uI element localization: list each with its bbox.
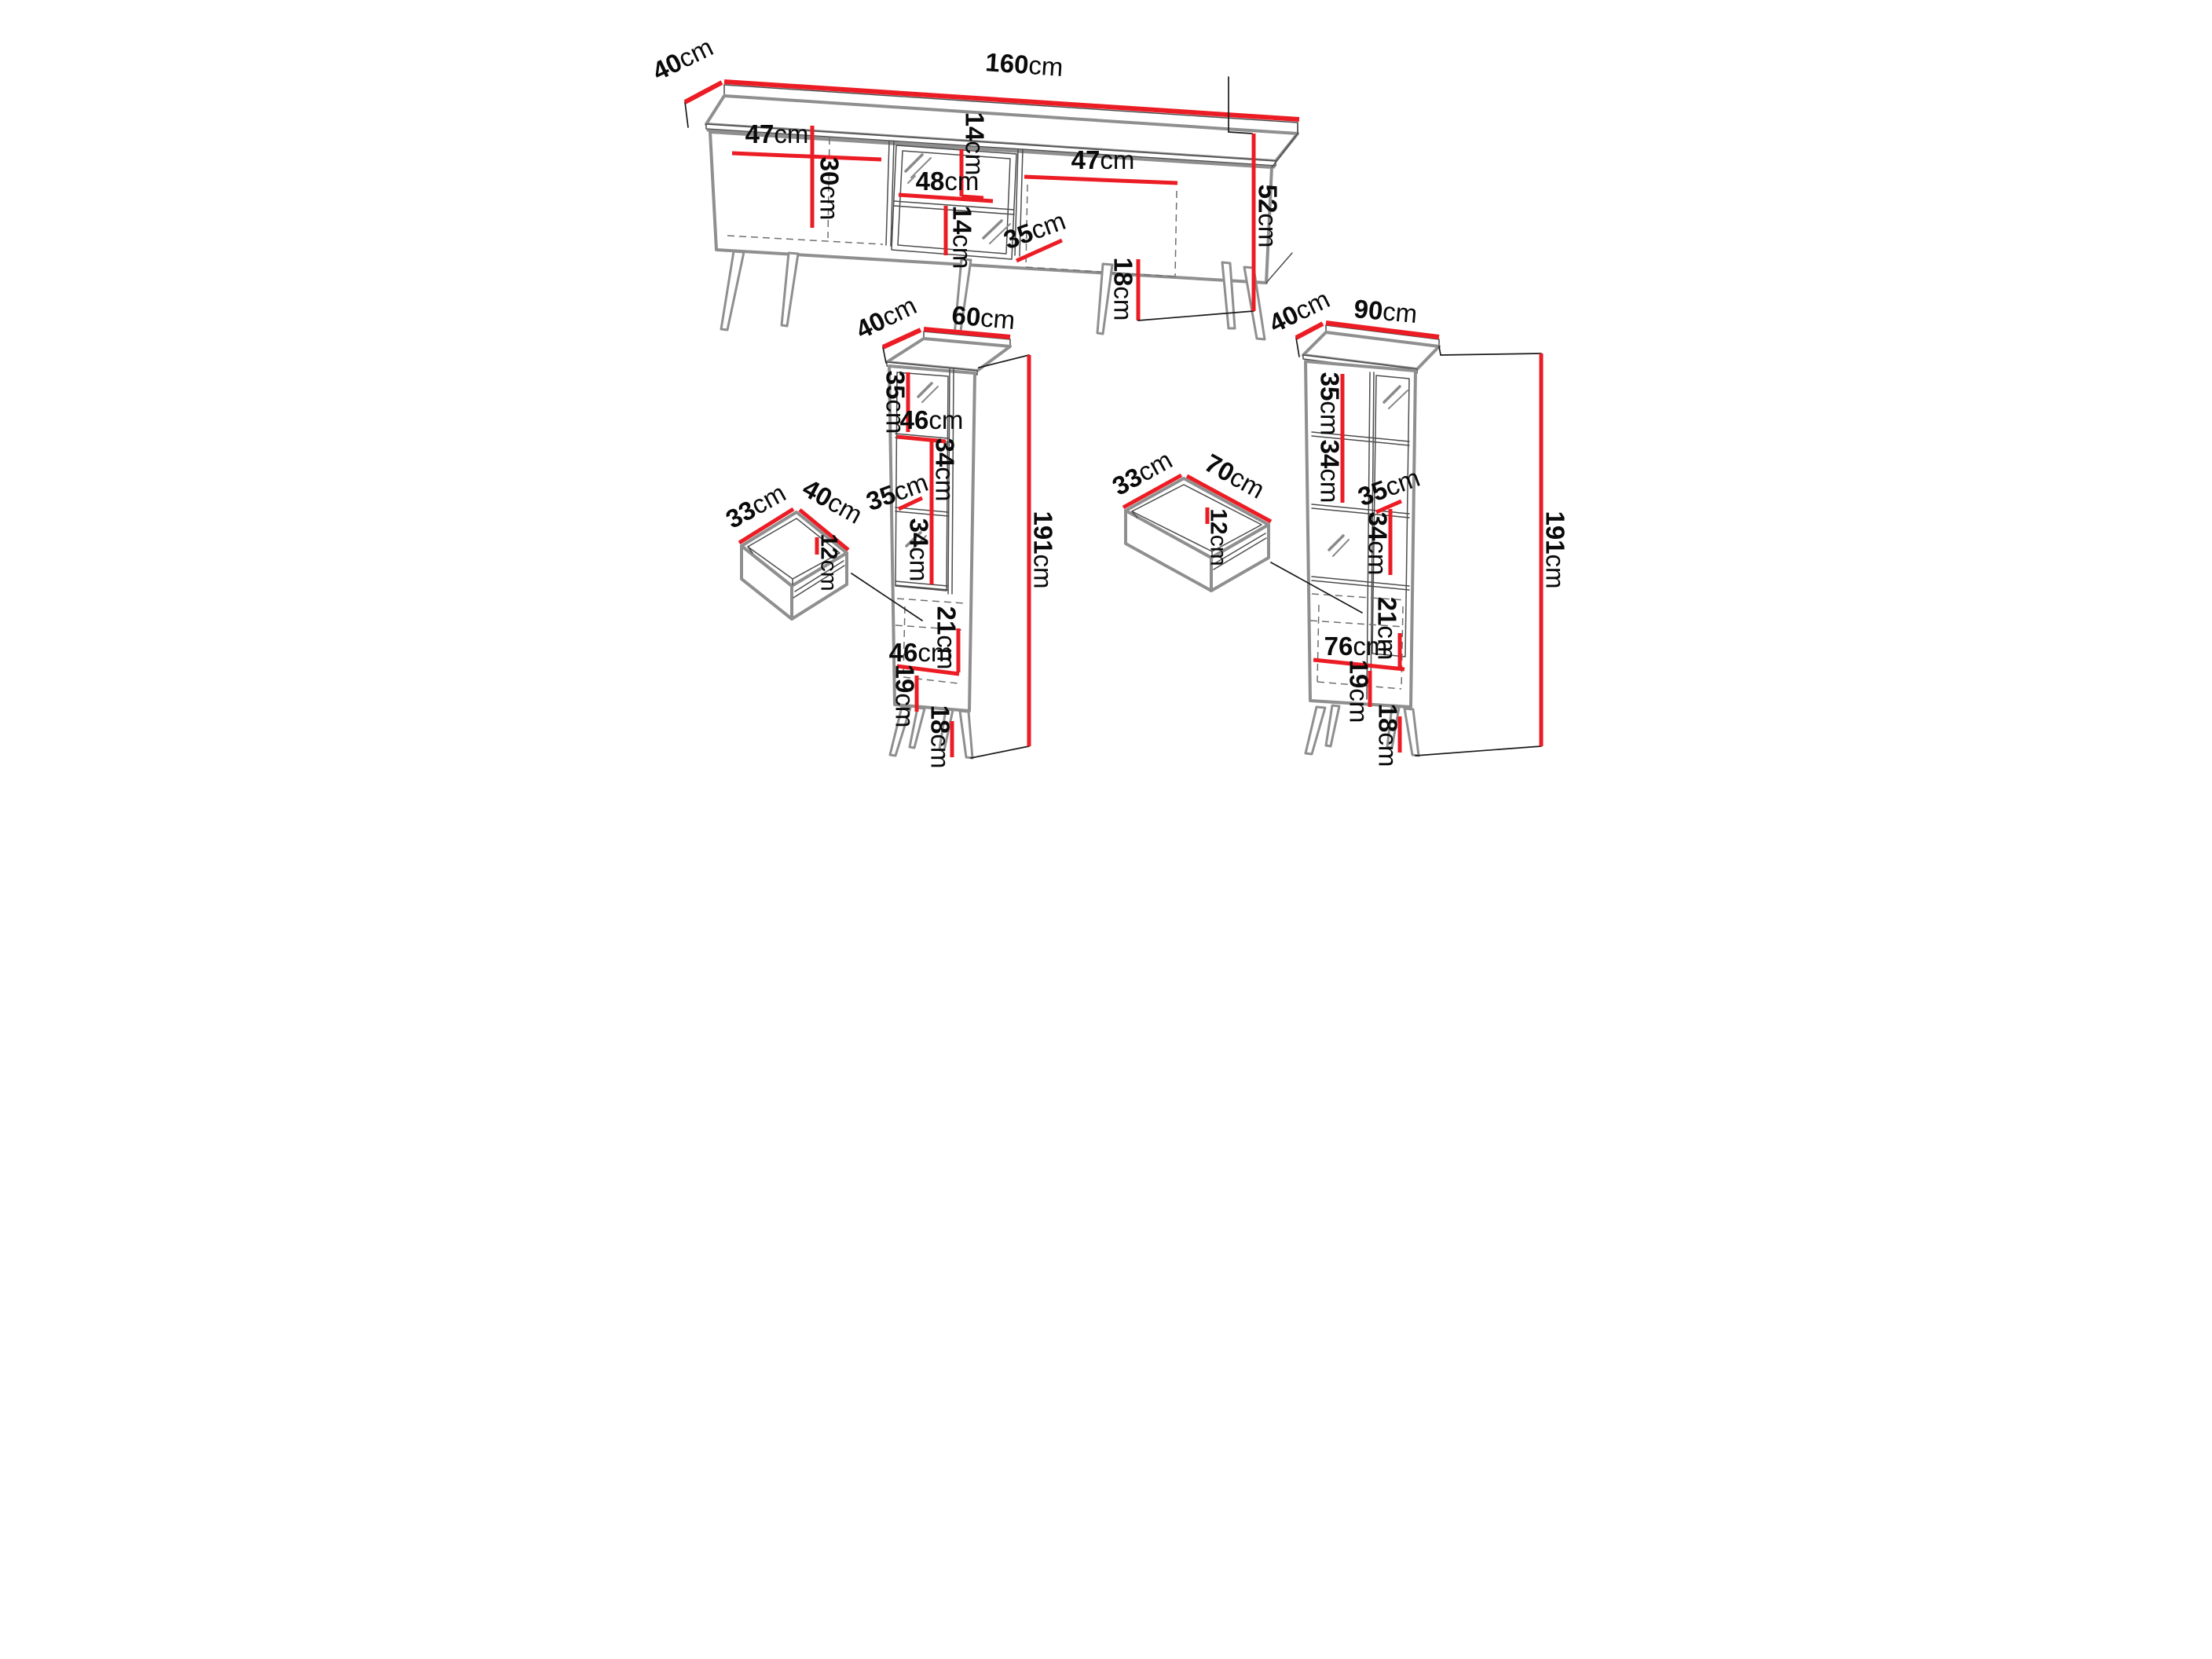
drawer-70: 33cm 70cm 12cm	[1108, 445, 1271, 591]
dim-tv-left-door-width: 47cm	[745, 119, 809, 148]
dim-tv-right-door-width: 47cm	[1071, 145, 1135, 174]
dim-d70-height: 12cm	[1206, 508, 1232, 566]
dim-c90-section2: 34cm	[1315, 440, 1344, 504]
furniture-dimension-diagram: 40cm 160cm 47cm 30cm 48cm 14cm 14cm 47cm…	[553, 0, 1659, 829]
dim-c90-section3: 34cm	[1363, 512, 1392, 576]
dim-c90-bottom-section: 19cm	[1344, 660, 1373, 723]
dim-c60-width: 60cm	[950, 300, 1016, 335]
dim-c60-section3: 34cm	[904, 518, 933, 582]
dim-tv-height: 52cm	[1253, 185, 1282, 248]
dim-c60-bottom-section: 19cm	[890, 665, 919, 728]
dim-tv-width: 160cm	[984, 47, 1064, 82]
dim-c60-height: 191cm	[1028, 511, 1057, 588]
dim-tv-left-door-height: 30cm	[815, 157, 844, 221]
dim-c90-height: 191cm	[1540, 511, 1569, 588]
dim-c90-section1: 35cm	[1315, 372, 1344, 436]
dim-c60-section2: 34cm	[930, 438, 959, 502]
cabinet-60: 40cm 60cm 35cm 46cm 34cm 35cm 34cm 21cm …	[851, 291, 1058, 769]
dim-c90-width: 90cm	[1353, 294, 1419, 328]
dim-tv-depth: 40cm	[648, 32, 718, 86]
dim-c60-leg-height: 18cm	[925, 705, 954, 769]
dim-c90-depth: 40cm	[1265, 284, 1335, 339]
dim-c90-bottom-width: 76cm	[1324, 632, 1388, 661]
dim-c90-leg-height: 18cm	[1373, 704, 1402, 767]
dim-c60-shelf-width: 46cm	[900, 405, 964, 434]
drawer-40: 33cm 40cm 12cm	[721, 473, 867, 619]
furniture-dimension-sheet: 40cm 160cm 47cm 30cm 48cm 14cm 14cm 47cm…	[553, 0, 1659, 829]
dim-c60-bottom-width: 46cm	[889, 638, 953, 667]
dim-tv-niche-height-bottom: 14cm	[947, 206, 976, 269]
tv-stand: 40cm 160cm 47cm 30cm 48cm 14cm 14cm 47cm…	[648, 32, 1299, 339]
dim-tv-leg-height: 18cm	[1108, 258, 1137, 321]
dim-tv-niche-height-top: 14cm	[960, 112, 989, 176]
dim-d40-height: 12cm	[816, 533, 842, 591]
cabinet-90: 40cm 90cm 35cm 34cm 35cm 34cm 21cm 76cm …	[1265, 284, 1570, 767]
